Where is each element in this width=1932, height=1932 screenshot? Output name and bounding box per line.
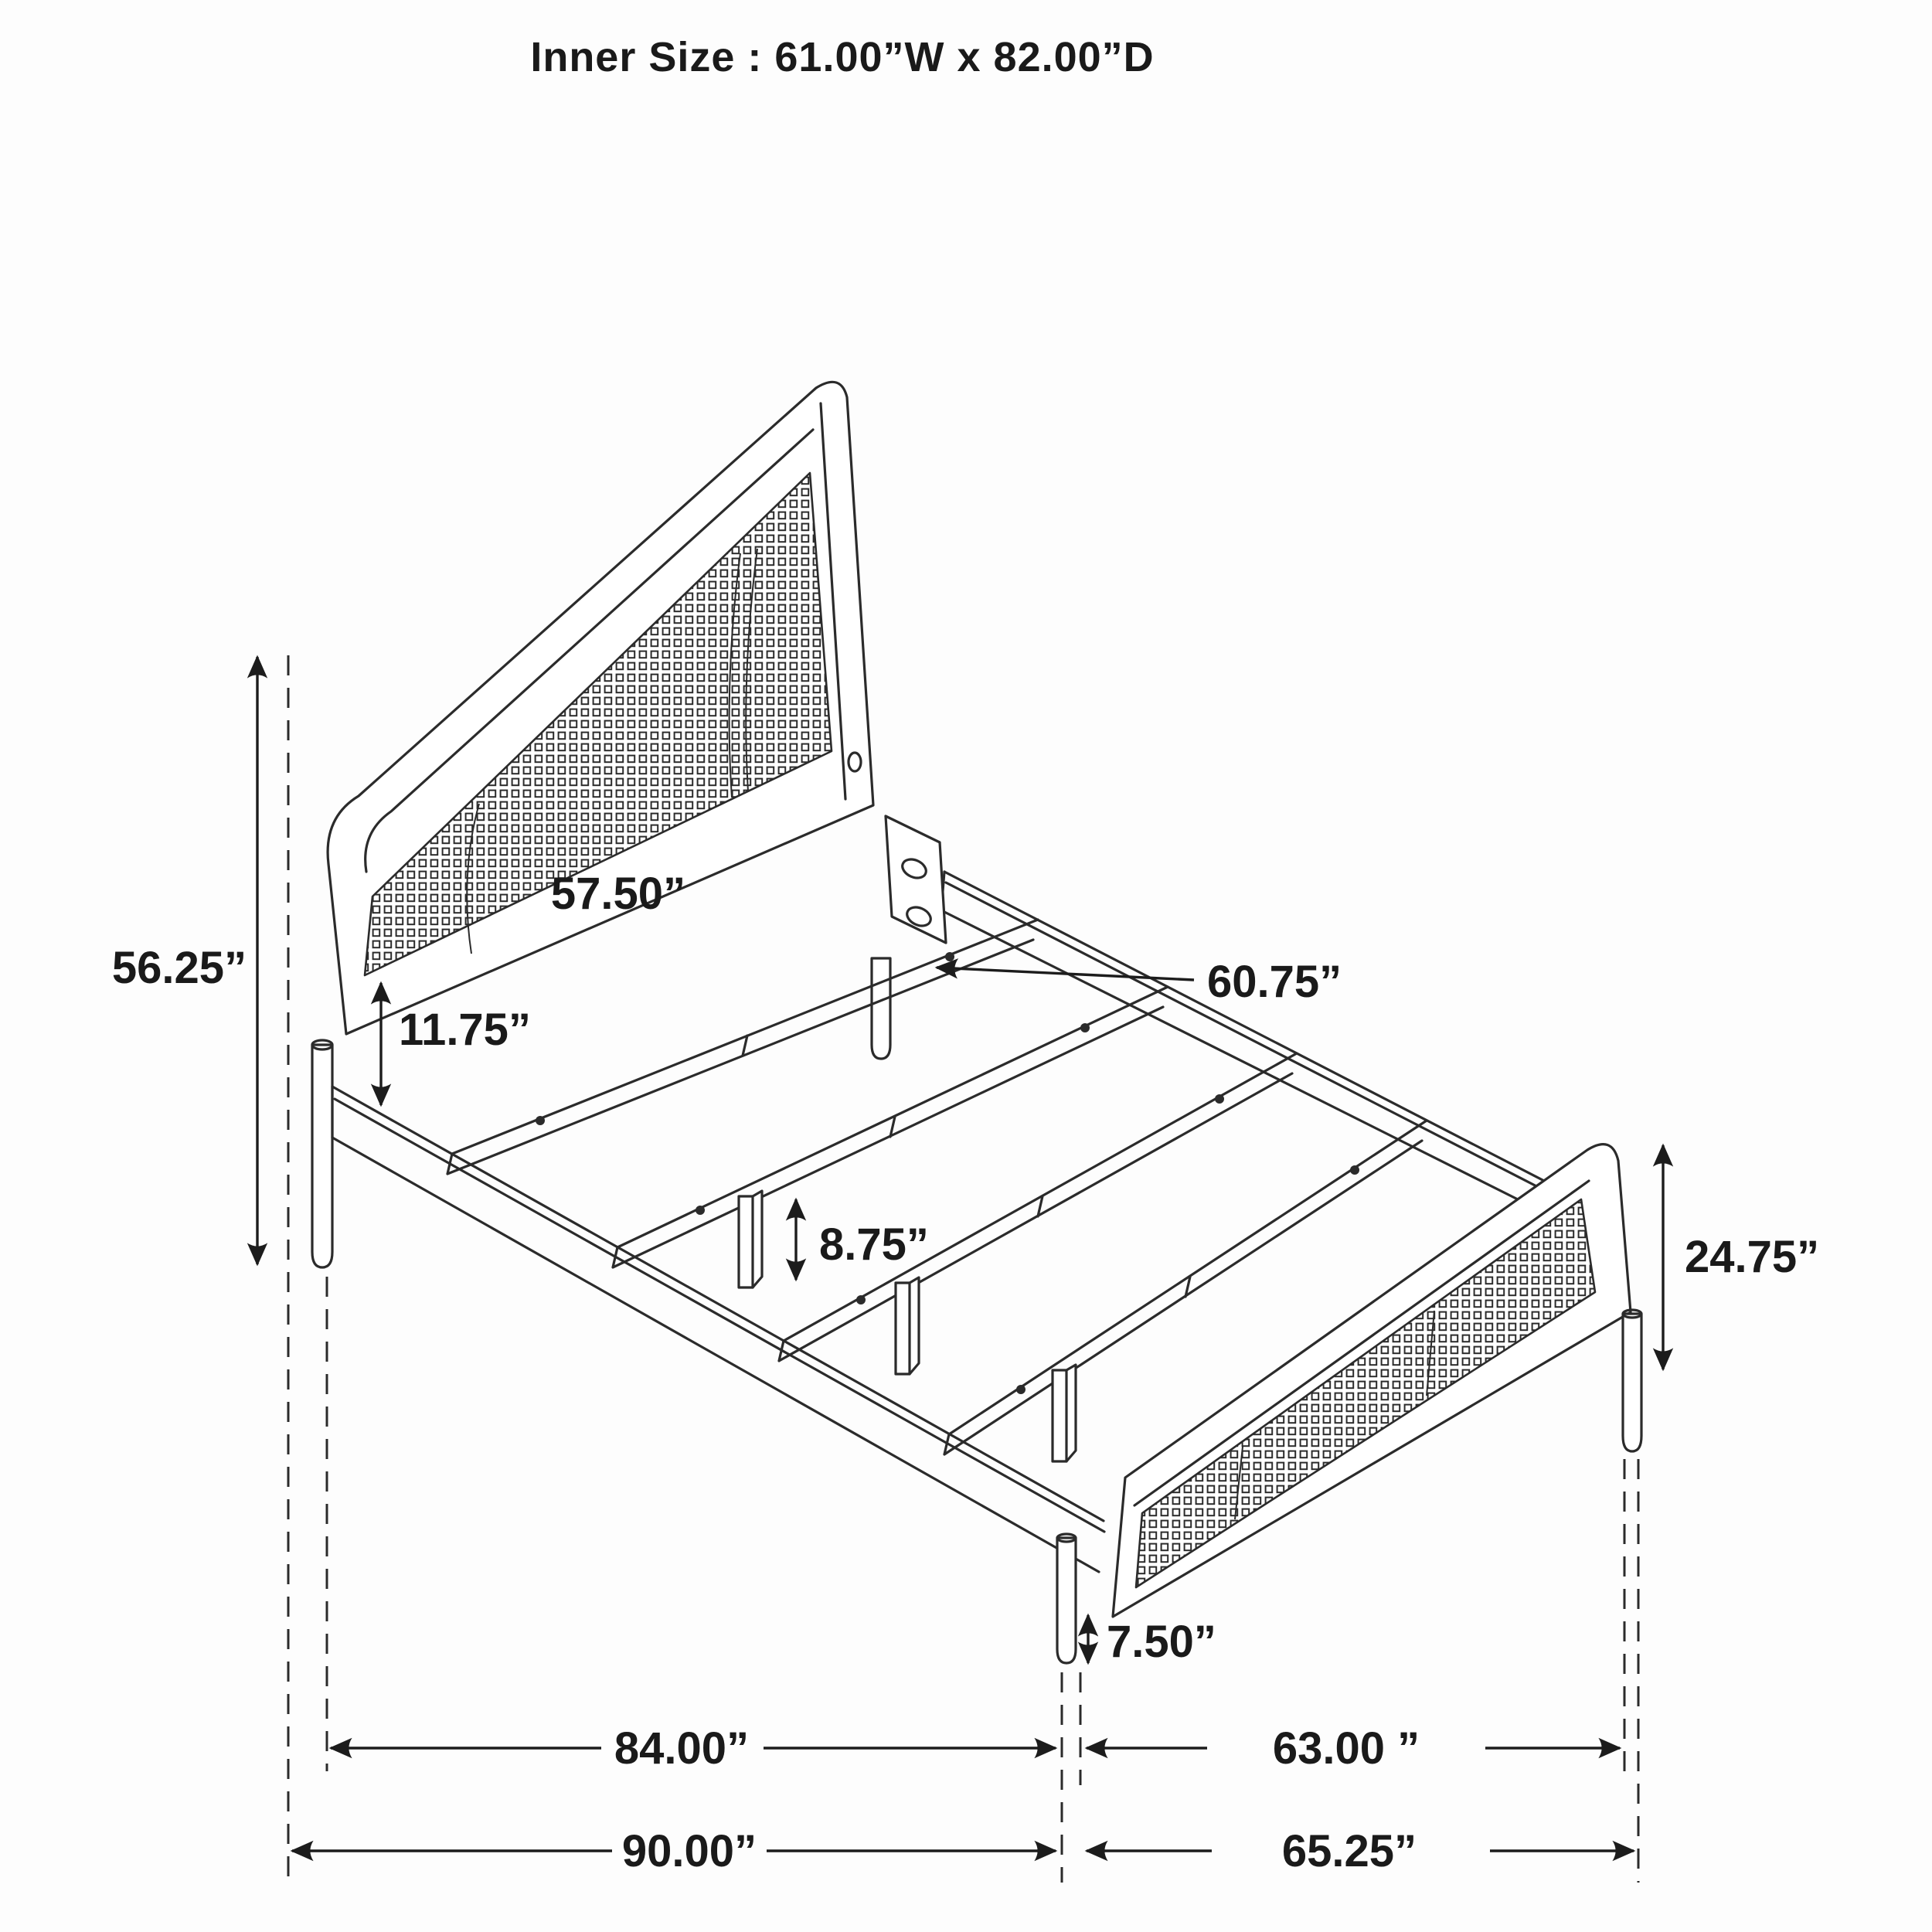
- dim-label-foot-width-overall: 65.25”: [1282, 1826, 1417, 1876]
- dim-foot-width-overall: 65.25”: [1087, 1826, 1634, 1876]
- dim-label-slat-length: 60.75”: [1207, 957, 1342, 1007]
- footboard-far-leg: [1623, 1314, 1641, 1451]
- dim-label-foot-width-inner: 63.00 ”: [1273, 1723, 1420, 1774]
- dim-label-headboard-rail-width: 57.50”: [551, 869, 685, 919]
- dim-overall-length: 90.00”: [292, 1826, 1056, 1876]
- footboard-near-leg: [1057, 1538, 1076, 1663]
- support-leg: [896, 1277, 919, 1374]
- dim-footboard-height: 24.75”: [1663, 1145, 1819, 1369]
- slat: [779, 1053, 1297, 1361]
- dim-label-footboard-height: 24.75”: [1685, 1232, 1819, 1282]
- support-leg: [739, 1191, 762, 1287]
- dim-footboard-leg-height: 7.50”: [1088, 1615, 1216, 1667]
- footboard: [1057, 1145, 1641, 1663]
- bed-dimension-diagram-page: 56.25” 57.50” 11.75” 60.75” 8.75” 24.75”…: [0, 0, 1932, 1932]
- headboard-post-pin: [872, 958, 890, 1059]
- headboard: [312, 382, 946, 1267]
- dim-center-leg-height: 8.75”: [796, 1199, 929, 1280]
- dim-foot-width-inner: 63.00 ”: [1087, 1723, 1620, 1774]
- page-title: Inner Size : 61.00”W x 82.00”D: [530, 34, 1154, 80]
- dim-rail-length: 84.00”: [331, 1723, 1056, 1774]
- support-leg: [1053, 1365, 1076, 1461]
- footboard-cane-panel: [1136, 1199, 1595, 1587]
- dim-headboard-rail-width: 57.50”: [551, 869, 685, 919]
- bed-dimension-diagram: 56.25” 57.50” 11.75” 60.75” 8.75” 24.75”…: [0, 0, 1932, 1932]
- dim-label-overall-length: 90.00”: [622, 1826, 757, 1876]
- near-side-rail: [332, 1087, 1104, 1572]
- dim-label-headboard-height: 56.25”: [112, 943, 247, 993]
- dim-label-footboard-leg-height: 7.50”: [1107, 1617, 1216, 1667]
- headboard-front-leg: [312, 1045, 332, 1267]
- dim-label-headboard-rail-gap: 11.75”: [399, 1005, 531, 1055]
- dim-label-center-leg-height: 8.75”: [819, 1219, 929, 1270]
- slat: [447, 920, 1038, 1174]
- dim-headboard-height: 56.25”: [112, 657, 257, 1264]
- dim-label-rail-length: 84.00”: [614, 1723, 749, 1774]
